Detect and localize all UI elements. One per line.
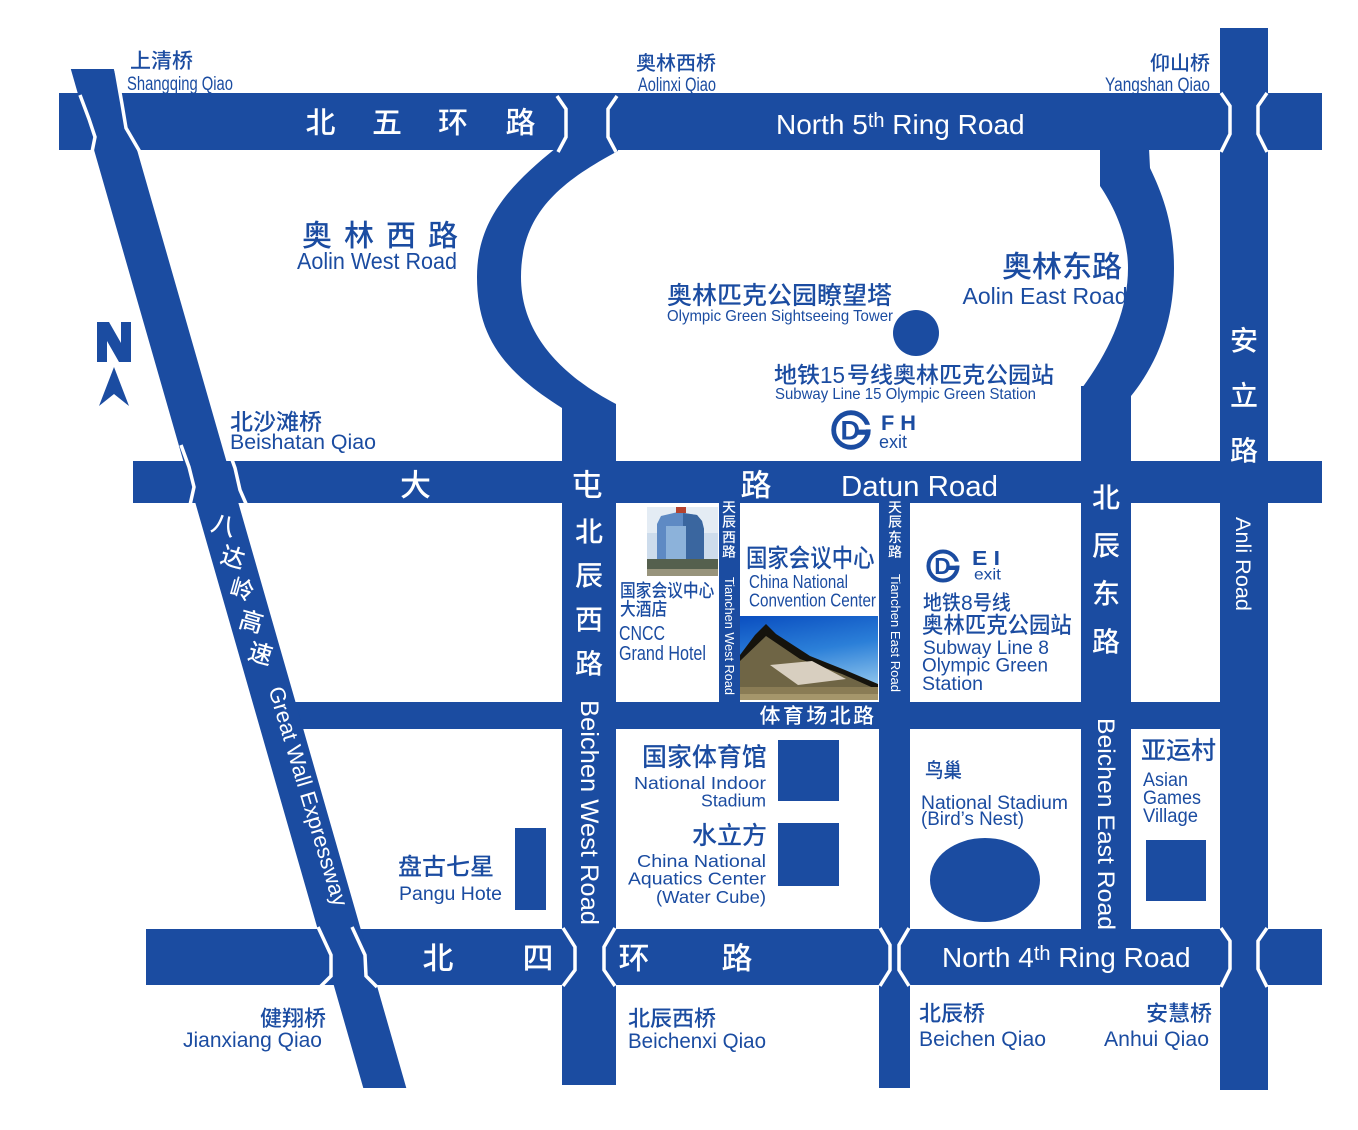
svg-text:Grand Hotel: Grand Hotel (619, 643, 706, 665)
svg-text:exit: exit (879, 432, 907, 452)
svg-text:Station: Station (922, 674, 983, 695)
svg-text:15: 15 (820, 362, 845, 388)
svg-text:8: 8 (961, 592, 973, 615)
svg-text:Anhui Qiao: Anhui Qiao (1104, 1028, 1209, 1051)
svg-text:Aquatics Center: Aquatics Center (628, 869, 766, 889)
svg-text:Beichen Qiao: Beichen Qiao (919, 1028, 1046, 1051)
svg-text:CNCC: CNCC (619, 623, 665, 645)
svg-text:exit: exit (974, 567, 1002, 584)
svg-text:(Water Cube): (Water Cube) (656, 887, 766, 907)
svg-text:North 5th Ring Road: North 5th Ring Road (776, 109, 1025, 140)
svg-text:(Bird’s Nest): (Bird’s Nest) (921, 809, 1024, 830)
svg-text:Beishatan Qiao: Beishatan Qiao (230, 431, 376, 454)
svg-text:Aolin West Road: Aolin West Road (297, 248, 457, 274)
svg-text:Beichen West Road: Beichen West Road (575, 700, 603, 925)
svg-text:Aolinxi Qiao: Aolinxi Qiao (638, 75, 716, 96)
svg-text:Beichenxi Qiao: Beichenxi Qiao (628, 1030, 766, 1053)
svg-text:Jianxiang Qiao: Jianxiang Qiao (183, 1029, 322, 1052)
svg-text:Yangshan Qiao: Yangshan Qiao (1105, 75, 1210, 96)
svg-text:Beichen East Road: Beichen East Road (1092, 718, 1119, 930)
svg-text:Village: Village (1143, 806, 1198, 827)
svg-text:Datun Road: Datun Road (841, 471, 998, 503)
svg-text:Shangqing Qiao: Shangqing Qiao (127, 74, 233, 95)
svg-text:North 4th Ring Road: North 4th Ring Road (942, 942, 1191, 973)
svg-text:Tianchen East Road: Tianchen East Road (888, 574, 902, 692)
svg-text:Pangu Hote: Pangu Hote (399, 884, 502, 905)
svg-text:Subway Line 15 Olympic Green S: Subway Line 15 Olympic Green Station (775, 386, 1036, 403)
svg-text:Convention Center: Convention Center (749, 591, 876, 611)
svg-text:Aolin East Road: Aolin East Road (963, 283, 1128, 309)
svg-text:Anli Road: Anli Road (1231, 517, 1254, 611)
svg-text:Stadium: Stadium (701, 791, 766, 811)
svg-text:Olympic Green Sightseeing Towe: Olympic Green Sightseeing Tower (667, 308, 894, 325)
svg-text:China National: China National (749, 572, 848, 592)
svg-text:Tianchen West Road: Tianchen West Road (722, 577, 736, 695)
